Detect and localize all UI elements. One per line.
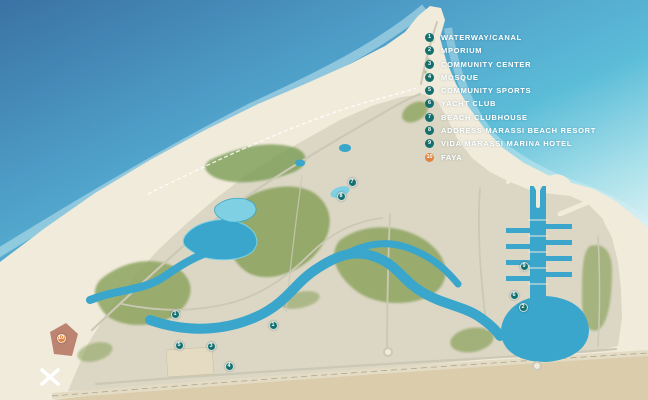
- legend-label: WATERWAY/CANAL: [441, 33, 522, 42]
- map-marker-1-0[interactable]: 1: [171, 310, 180, 319]
- map-marker-4-4[interactable]: 4: [225, 362, 234, 371]
- map-marker-5-2[interactable]: 5: [175, 341, 184, 350]
- legend-number-icon: 3: [425, 60, 434, 69]
- legend-number-icon: 5: [425, 86, 434, 95]
- map-marker-10-5[interactable]: 10: [57, 334, 66, 343]
- legend-item-mosque: 4MOSQUE: [425, 73, 596, 82]
- legend-number-icon: 8: [425, 126, 434, 135]
- legend-number-icon: 9: [425, 139, 434, 148]
- legend-item-yacht-club: 6YACHT CLUB: [425, 99, 596, 108]
- map-marker-2-10[interactable]: 2: [519, 303, 528, 312]
- map-marker-7-6[interactable]: 7: [348, 178, 357, 187]
- legend-label: MPORIUM: [441, 46, 482, 55]
- resort-master-plan: 1WATERWAY/CANAL2MPORIUM3COMMUNITY CENTER…: [0, 0, 648, 400]
- legend-item-beach-clubhouse: 7BEACH CLUBHOUSE: [425, 113, 596, 122]
- empty-lot: [166, 347, 214, 377]
- map-marker-8-7[interactable]: 8: [337, 192, 346, 201]
- legend-item-waterway-canal: 1WATERWAY/CANAL: [425, 33, 596, 42]
- map-marker-9-8[interactable]: 9: [520, 262, 529, 271]
- legend-label: ADDRESS MARASSI BEACH RESORT: [441, 126, 596, 135]
- legend-number-icon: 6: [425, 99, 434, 108]
- legend-label: MOSQUE: [441, 73, 479, 82]
- legend-label: VIDA MARASSI MARINA HOTEL: [441, 139, 572, 148]
- legend-label: COMMUNITY SPORTS: [441, 86, 531, 95]
- legend-number-icon: 2: [425, 46, 434, 55]
- legend-item-community-center: 3COMMUNITY CENTER: [425, 60, 596, 69]
- legend-item-vida-marassi-marina-hotel: 9VIDA MARASSI MARINA HOTEL: [425, 139, 596, 148]
- legend: 1WATERWAY/CANAL2MPORIUM3COMMUNITY CENTER…: [425, 33, 596, 166]
- map-marker-3-3[interactable]: 3: [207, 342, 216, 351]
- legend-number-icon: 1: [425, 33, 434, 42]
- legend-number-icon: 4: [425, 73, 434, 82]
- legend-item-faya: 10FAYA: [425, 153, 596, 162]
- legend-item-address-marassi-beach-resort: 8ADDRESS MARASSI BEACH RESORT: [425, 126, 596, 135]
- map-marker-1-1[interactable]: 1: [269, 321, 278, 330]
- legend-label: YACHT CLUB: [441, 99, 496, 108]
- legend-number-icon: 10: [425, 153, 434, 162]
- legend-label: FAYA: [441, 153, 462, 162]
- legend-item-community-sports: 5COMMUNITY SPORTS: [425, 86, 596, 95]
- map-marker-6-9[interactable]: 6: [510, 291, 519, 300]
- legend-label: BEACH CLUBHOUSE: [441, 113, 528, 122]
- legend-label: COMMUNITY CENTER: [441, 60, 531, 69]
- legend-item-mporium: 2MPORIUM: [425, 46, 596, 55]
- legend-number-icon: 7: [425, 113, 434, 122]
